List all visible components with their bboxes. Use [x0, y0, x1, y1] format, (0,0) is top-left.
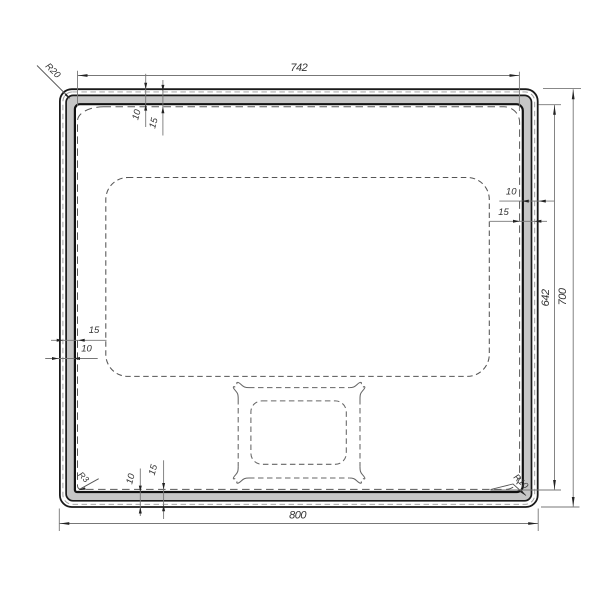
- svg-text:10: 10: [81, 344, 92, 355]
- svg-text:10: 10: [506, 187, 517, 198]
- svg-text:10: 10: [124, 472, 138, 486]
- svg-text:642: 642: [540, 289, 552, 306]
- svg-text:742: 742: [290, 62, 307, 74]
- svg-text:15: 15: [89, 325, 100, 336]
- svg-text:10: 10: [130, 108, 144, 122]
- svg-text:15: 15: [498, 207, 509, 218]
- svg-text:800: 800: [289, 510, 307, 522]
- svg-text:R3: R3: [76, 470, 91, 485]
- svg-text:15: 15: [147, 116, 161, 130]
- svg-text:15: 15: [147, 463, 161, 477]
- svg-text:700: 700: [557, 287, 569, 305]
- svg-text:R20: R20: [44, 61, 64, 81]
